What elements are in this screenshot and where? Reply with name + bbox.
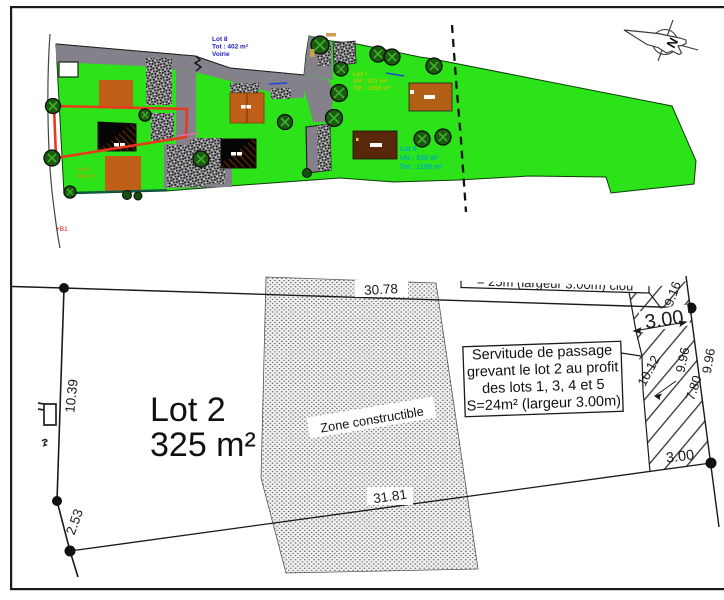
svg-text:+B1: +B1 [56,226,68,233]
svg-text:325 m²: 325 m² [150,426,256,464]
svg-text:Lot 2: Lot 2 [150,391,226,429]
svg-text:Voirie: Voirie [212,51,230,58]
svg-text:3.00: 3.00 [665,447,695,466]
svg-text:Lot 8: Lot 8 [212,36,228,43]
svg-text:Tot : 1199 m²: Tot : 1199 m² [400,164,443,171]
svg-text:30.78: 30.78 [364,281,399,298]
svg-text:Lot 6: Lot 6 [400,146,417,153]
svg-text:Lot 7: Lot 7 [353,71,368,78]
svg-text:UH : 520 m²: UH : 520 m² [400,155,439,162]
svg-text:314 m²: 314 m² [77,173,95,180]
svg-text:UH : 531 m²: UH : 531 m² [353,78,387,85]
svg-text:Tot : 2288 m²: Tot : 2288 m² [353,85,391,92]
svg-text:Tot : 402 m²: Tot : 402 m² [212,44,249,51]
svg-text:Lot 1: Lot 1 [77,167,90,173]
